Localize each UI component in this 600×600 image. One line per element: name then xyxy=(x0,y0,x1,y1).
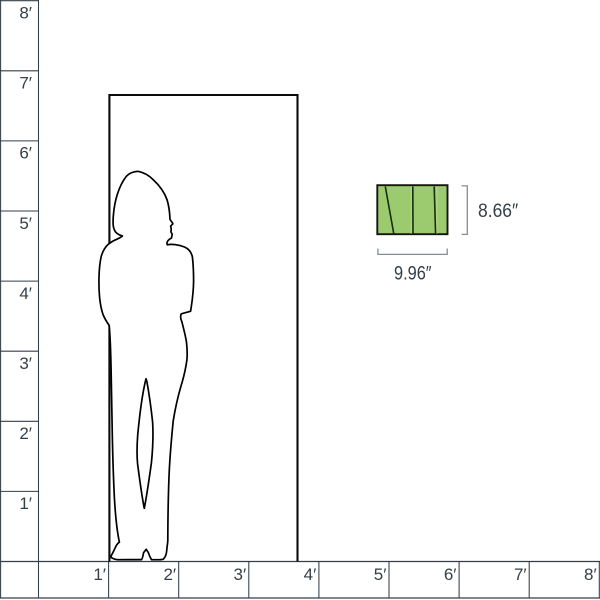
svg-text:6′: 6′ xyxy=(444,565,457,584)
svg-text:2′: 2′ xyxy=(19,424,32,443)
svg-text:5′: 5′ xyxy=(374,565,387,584)
svg-text:8.66″: 8.66″ xyxy=(478,200,518,222)
svg-text:7′: 7′ xyxy=(19,74,32,93)
svg-text:7′: 7′ xyxy=(514,565,527,584)
svg-text:8′: 8′ xyxy=(584,565,597,584)
svg-text:2′: 2′ xyxy=(163,565,176,584)
svg-text:5′: 5′ xyxy=(19,214,32,233)
svg-text:4′: 4′ xyxy=(19,284,32,303)
svg-text:4′: 4′ xyxy=(304,565,317,584)
svg-text:1′: 1′ xyxy=(19,494,32,513)
svg-text:8′: 8′ xyxy=(19,4,32,23)
svg-text:3′: 3′ xyxy=(19,354,32,373)
svg-text:9.96″: 9.96″ xyxy=(394,263,432,285)
svg-text:3′: 3′ xyxy=(234,565,247,584)
svg-text:6′: 6′ xyxy=(19,144,32,163)
svg-text:1′: 1′ xyxy=(93,565,106,584)
